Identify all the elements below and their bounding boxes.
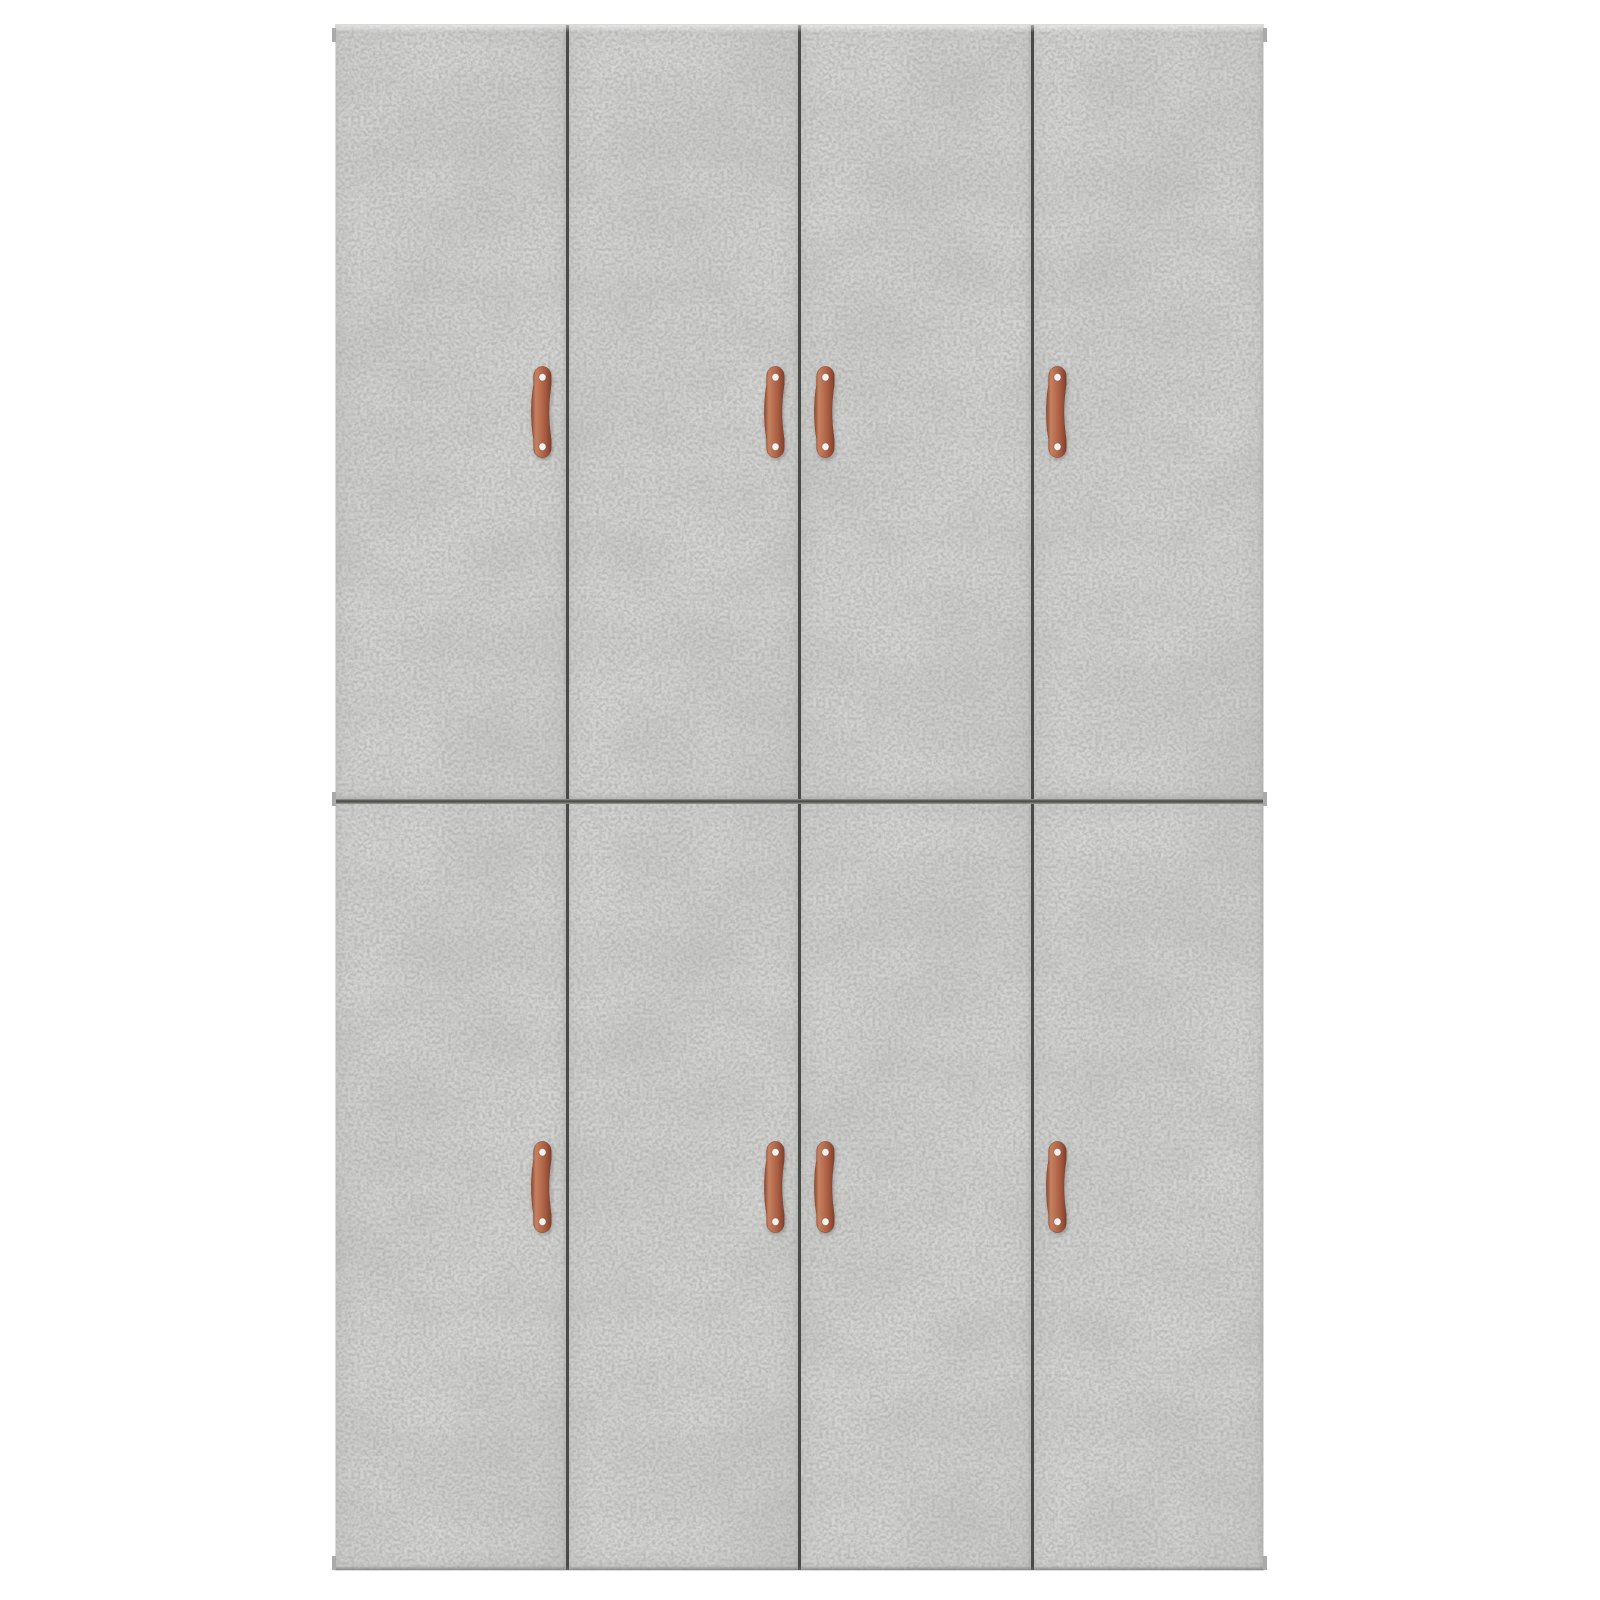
side-panel-tab bbox=[332, 1556, 336, 1570]
screw-icon bbox=[539, 1149, 546, 1156]
door-handle bbox=[814, 1140, 836, 1234]
screw-icon bbox=[822, 443, 829, 450]
side-panel-tab bbox=[332, 28, 336, 42]
copper-handle-graphic bbox=[1046, 1140, 1068, 1234]
screw-icon bbox=[539, 374, 546, 381]
screw-icon bbox=[772, 374, 779, 381]
screw-icon bbox=[1054, 1149, 1061, 1156]
screw-icon bbox=[822, 1149, 829, 1156]
copper-handle-graphic bbox=[814, 365, 836, 459]
copper-handle-graphic bbox=[531, 1140, 553, 1234]
door-grid-upper bbox=[336, 25, 1263, 799]
door-handle bbox=[531, 365, 553, 459]
screw-icon bbox=[772, 443, 779, 450]
cabinet bbox=[336, 25, 1263, 1570]
mid-horizontal-seam bbox=[336, 799, 1263, 804]
screw-icon bbox=[822, 1218, 829, 1225]
screw-icon bbox=[822, 374, 829, 381]
screw-icon bbox=[539, 443, 546, 450]
door-handle bbox=[1046, 365, 1068, 459]
door-handle bbox=[764, 1140, 786, 1234]
copper-handle-graphic bbox=[1046, 365, 1068, 459]
cabinet-section-lower bbox=[336, 804, 1263, 1570]
product-image bbox=[0, 0, 1600, 1600]
side-panel-tab bbox=[1263, 1556, 1267, 1570]
screw-icon bbox=[1054, 443, 1061, 450]
side-panel-tab bbox=[1263, 28, 1267, 42]
screw-icon bbox=[772, 1218, 779, 1225]
door-handle bbox=[531, 1140, 553, 1234]
copper-handle-graphic bbox=[531, 365, 553, 459]
side-panel-tab bbox=[1263, 792, 1267, 806]
door-handle bbox=[1046, 1140, 1068, 1234]
cabinet-section-upper bbox=[336, 25, 1263, 799]
door-handle bbox=[764, 365, 786, 459]
door-handle bbox=[814, 365, 836, 459]
door-grid-lower bbox=[336, 804, 1263, 1570]
screw-icon bbox=[539, 1218, 546, 1225]
copper-handle-graphic bbox=[764, 1140, 786, 1234]
copper-handle-graphic bbox=[764, 365, 786, 459]
copper-handle-graphic bbox=[814, 1140, 836, 1234]
screw-icon bbox=[772, 1149, 779, 1156]
screw-icon bbox=[1054, 374, 1061, 381]
screw-icon bbox=[1054, 1218, 1061, 1225]
